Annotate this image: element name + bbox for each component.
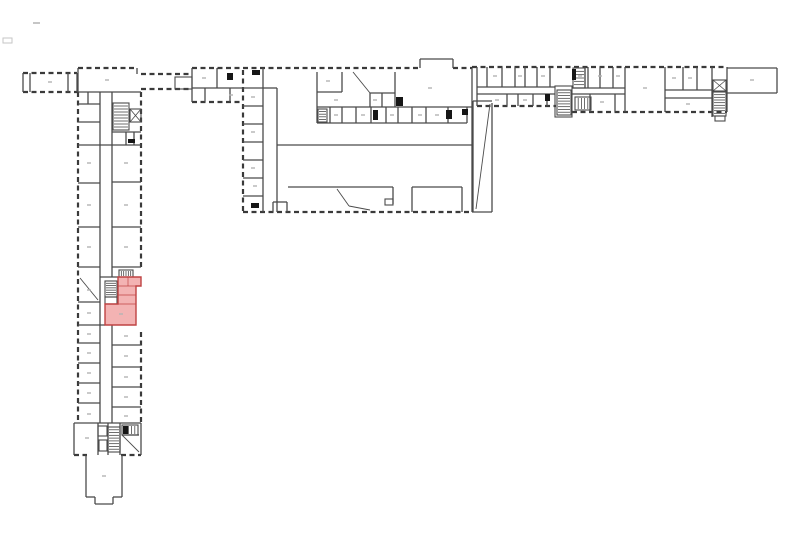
room-label-mark xyxy=(523,99,527,100)
room-label-mark xyxy=(598,75,602,76)
room-label-mark xyxy=(124,355,128,356)
room-outline xyxy=(175,77,192,89)
stairwell-box xyxy=(575,97,591,110)
room-label-mark xyxy=(124,415,128,416)
diagonal-line xyxy=(80,278,98,300)
stairwell-box xyxy=(318,109,327,122)
door-mark xyxy=(572,69,576,80)
page-artifacts xyxy=(3,22,40,43)
door-mark xyxy=(446,110,452,119)
door-mark xyxy=(123,426,128,434)
door-mark xyxy=(396,97,403,106)
room-label-mark xyxy=(578,75,582,76)
stairwell-box xyxy=(113,103,129,130)
room-label-mark xyxy=(87,392,91,393)
room-outline xyxy=(99,440,107,451)
door-mark xyxy=(251,203,259,208)
room-outline xyxy=(98,426,107,436)
room-label-mark xyxy=(428,87,432,88)
room-label-mark xyxy=(48,81,52,82)
room-label-mark xyxy=(87,204,91,205)
room-label-mark xyxy=(435,114,439,115)
diagonal-line xyxy=(476,104,490,209)
room-label-mark xyxy=(750,79,754,80)
room-outline xyxy=(105,297,117,304)
page-artifact-box xyxy=(3,38,12,43)
floor-plan-page xyxy=(0,0,800,533)
diagonal-line xyxy=(349,206,370,210)
stairwell-box xyxy=(557,90,571,115)
room-label-mark xyxy=(124,335,128,336)
room-label-mark xyxy=(251,96,255,97)
room-label-mark xyxy=(124,246,128,247)
door-mark xyxy=(545,94,550,101)
room-outlines xyxy=(98,77,725,451)
room-label-mark xyxy=(124,162,128,163)
room-label-mark xyxy=(119,313,123,314)
room-label-mark xyxy=(334,99,338,100)
room-label-mark xyxy=(688,77,692,78)
room-label-mark xyxy=(418,114,422,115)
room-label-mark xyxy=(85,437,89,438)
room-label-mark xyxy=(251,131,255,132)
door-mark xyxy=(128,139,135,143)
stairwells xyxy=(105,68,726,452)
room-label-mark xyxy=(124,204,128,205)
room-label-mark xyxy=(87,246,91,247)
room-label-mark xyxy=(87,333,91,334)
stairwell-box xyxy=(108,427,120,452)
door-mark xyxy=(373,110,378,120)
room-label-mark xyxy=(102,475,106,476)
room-label-mark xyxy=(493,75,497,76)
room-label-mark xyxy=(643,87,647,88)
room-label-mark xyxy=(373,99,377,100)
room-label-mark xyxy=(495,99,499,100)
room-label-mark xyxy=(334,114,338,115)
page-artifact-dash xyxy=(33,22,40,24)
room-label-mark xyxy=(87,289,91,290)
room-label-mark xyxy=(124,376,128,377)
room-label-mark xyxy=(541,75,545,76)
diagonal-line xyxy=(337,189,349,206)
door-mark xyxy=(252,70,260,75)
floor-plan xyxy=(0,0,800,533)
room-label-marks xyxy=(48,75,754,476)
diagonal-line xyxy=(353,72,370,93)
room-label-mark xyxy=(616,75,620,76)
room-label-mark xyxy=(87,413,91,414)
room-label-mark xyxy=(600,101,604,102)
room-label-mark xyxy=(251,167,255,168)
room-label-mark xyxy=(87,312,91,313)
room-label-mark xyxy=(518,75,522,76)
diagonal-line xyxy=(122,435,139,452)
room-label-mark xyxy=(361,114,365,115)
room-label-mark xyxy=(686,103,690,104)
room-label-mark xyxy=(390,114,394,115)
room-label-mark xyxy=(229,94,233,95)
highlight-layer xyxy=(105,277,141,325)
highlighted-room[interactable] xyxy=(105,277,141,325)
room-label-mark xyxy=(672,77,676,78)
door-mark xyxy=(462,109,468,115)
room-label-mark xyxy=(87,372,91,373)
room-label-mark xyxy=(202,77,206,78)
room-label-mark xyxy=(253,185,257,186)
room-label-mark xyxy=(124,396,128,397)
room-label-mark xyxy=(105,79,109,80)
room-label-mark xyxy=(87,352,91,353)
room-label-mark xyxy=(326,80,330,81)
room-outline xyxy=(715,116,725,121)
door-marks xyxy=(123,69,576,434)
room-label-mark xyxy=(87,162,91,163)
room-outline xyxy=(385,199,393,205)
door-mark xyxy=(227,73,233,80)
